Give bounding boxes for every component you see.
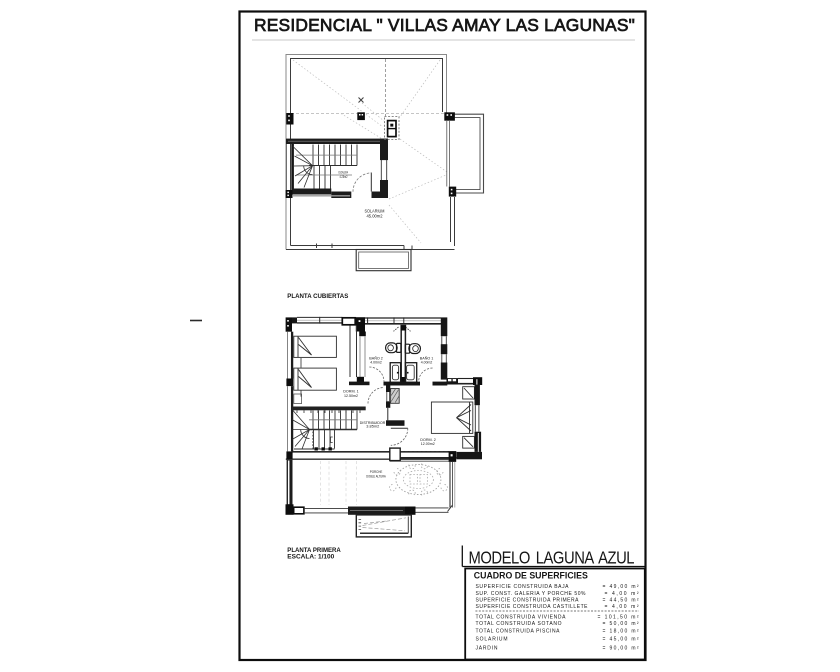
svg-text:SUPERFICIE CONSTRUIDA PRIMERA: SUPERFICIE CONSTRUIDA PRIMERA bbox=[476, 597, 580, 603]
svg-text:BAÑO 2: BAÑO 2 bbox=[369, 355, 383, 360]
svg-text:= 49,00 m²: = 49,00 m² bbox=[603, 584, 639, 590]
svg-text:CUADRO DE SUPERFICIES: CUADRO DE SUPERFICIES bbox=[474, 571, 588, 581]
svg-text:= 90,00 m²: = 90,00 m² bbox=[603, 646, 639, 652]
svg-text:4.00m2: 4.00m2 bbox=[370, 361, 382, 365]
svg-text:= 4,00 m²: = 4,00 m² bbox=[605, 591, 639, 597]
svg-text:= 44,50 m²: = 44,50 m² bbox=[603, 597, 639, 603]
svg-text:= 4,00 m²: = 4,00 m² bbox=[605, 604, 639, 610]
svg-text:SOLARIUM: SOLARIUM bbox=[476, 636, 508, 642]
svg-text:DOBLE ALTURA: DOBLE ALTURA bbox=[366, 475, 386, 479]
svg-text:PORCHE: PORCHE bbox=[370, 470, 383, 474]
svg-text:= 45,00 m²: = 45,00 m² bbox=[603, 636, 639, 642]
svg-text:BAÑO 1: BAÑO 1 bbox=[420, 355, 434, 360]
svg-text:ESCALA: 1/100: ESCALA: 1/100 bbox=[287, 555, 335, 561]
svg-text:4.00m2: 4.00m2 bbox=[421, 361, 433, 365]
svg-text:TOTAL CONSTRUIDA VIVIENDA: TOTAL CONSTRUIDA VIVIENDA bbox=[476, 614, 567, 620]
svg-text:TOTAL CONSTRUIDA PISCINA: TOTAL CONSTRUIDA PISCINA bbox=[476, 629, 561, 635]
svg-text:SUPERFICIE CONSTRUIDA BAJA: SUPERFICIE CONSTRUIDA BAJA bbox=[476, 584, 570, 590]
svg-text:MODELO LAGUNA AZUL: MODELO LAGUNA AZUL bbox=[469, 548, 635, 567]
svg-text:DORM. 1: DORM. 1 bbox=[343, 389, 359, 393]
svg-text:12.50m2: 12.50m2 bbox=[344, 394, 358, 398]
svg-text:PLANTA CUBIERTAS: PLANTA CUBIERTAS bbox=[287, 294, 348, 300]
svg-text:45.00m2: 45.00m2 bbox=[367, 214, 384, 219]
svg-text:3.85m2: 3.85m2 bbox=[366, 425, 379, 429]
svg-text:JARDIN: JARDIN bbox=[476, 646, 498, 652]
svg-text:4.25m2: 4.25m2 bbox=[340, 175, 348, 179]
svg-text:RESIDENCIAL " VILLAS AMAY LAS: RESIDENCIAL " VILLAS AMAY LAS LAGUNAS" bbox=[254, 15, 635, 35]
svg-text:ESCALERA: ESCALERA bbox=[339, 171, 349, 175]
svg-text:TOTAL CONSTRUIDA SOTANO: TOTAL CONSTRUIDA SOTANO bbox=[476, 621, 562, 627]
svg-text:SUPERFICIE CONSTRUIDA CASTILLE: SUPERFICIE CONSTRUIDA CASTILLETE bbox=[476, 604, 589, 610]
svg-text:SUP. CONST. GALERIA Y PORCHE 5: SUP. CONST. GALERIA Y PORCHE 50% bbox=[476, 591, 587, 597]
svg-text:DORM. 2: DORM. 2 bbox=[420, 438, 436, 442]
svg-text:= 18,00 m²: = 18,00 m² bbox=[603, 629, 639, 635]
svg-text:12.00m2: 12.00m2 bbox=[421, 442, 435, 446]
svg-text:= 101,50 m²: = 101,50 m² bbox=[598, 614, 639, 620]
svg-text:= 50,00 m²: = 50,00 m² bbox=[603, 621, 639, 627]
svg-text:PLANTA PRIMERA: PLANTA PRIMERA bbox=[287, 548, 341, 554]
